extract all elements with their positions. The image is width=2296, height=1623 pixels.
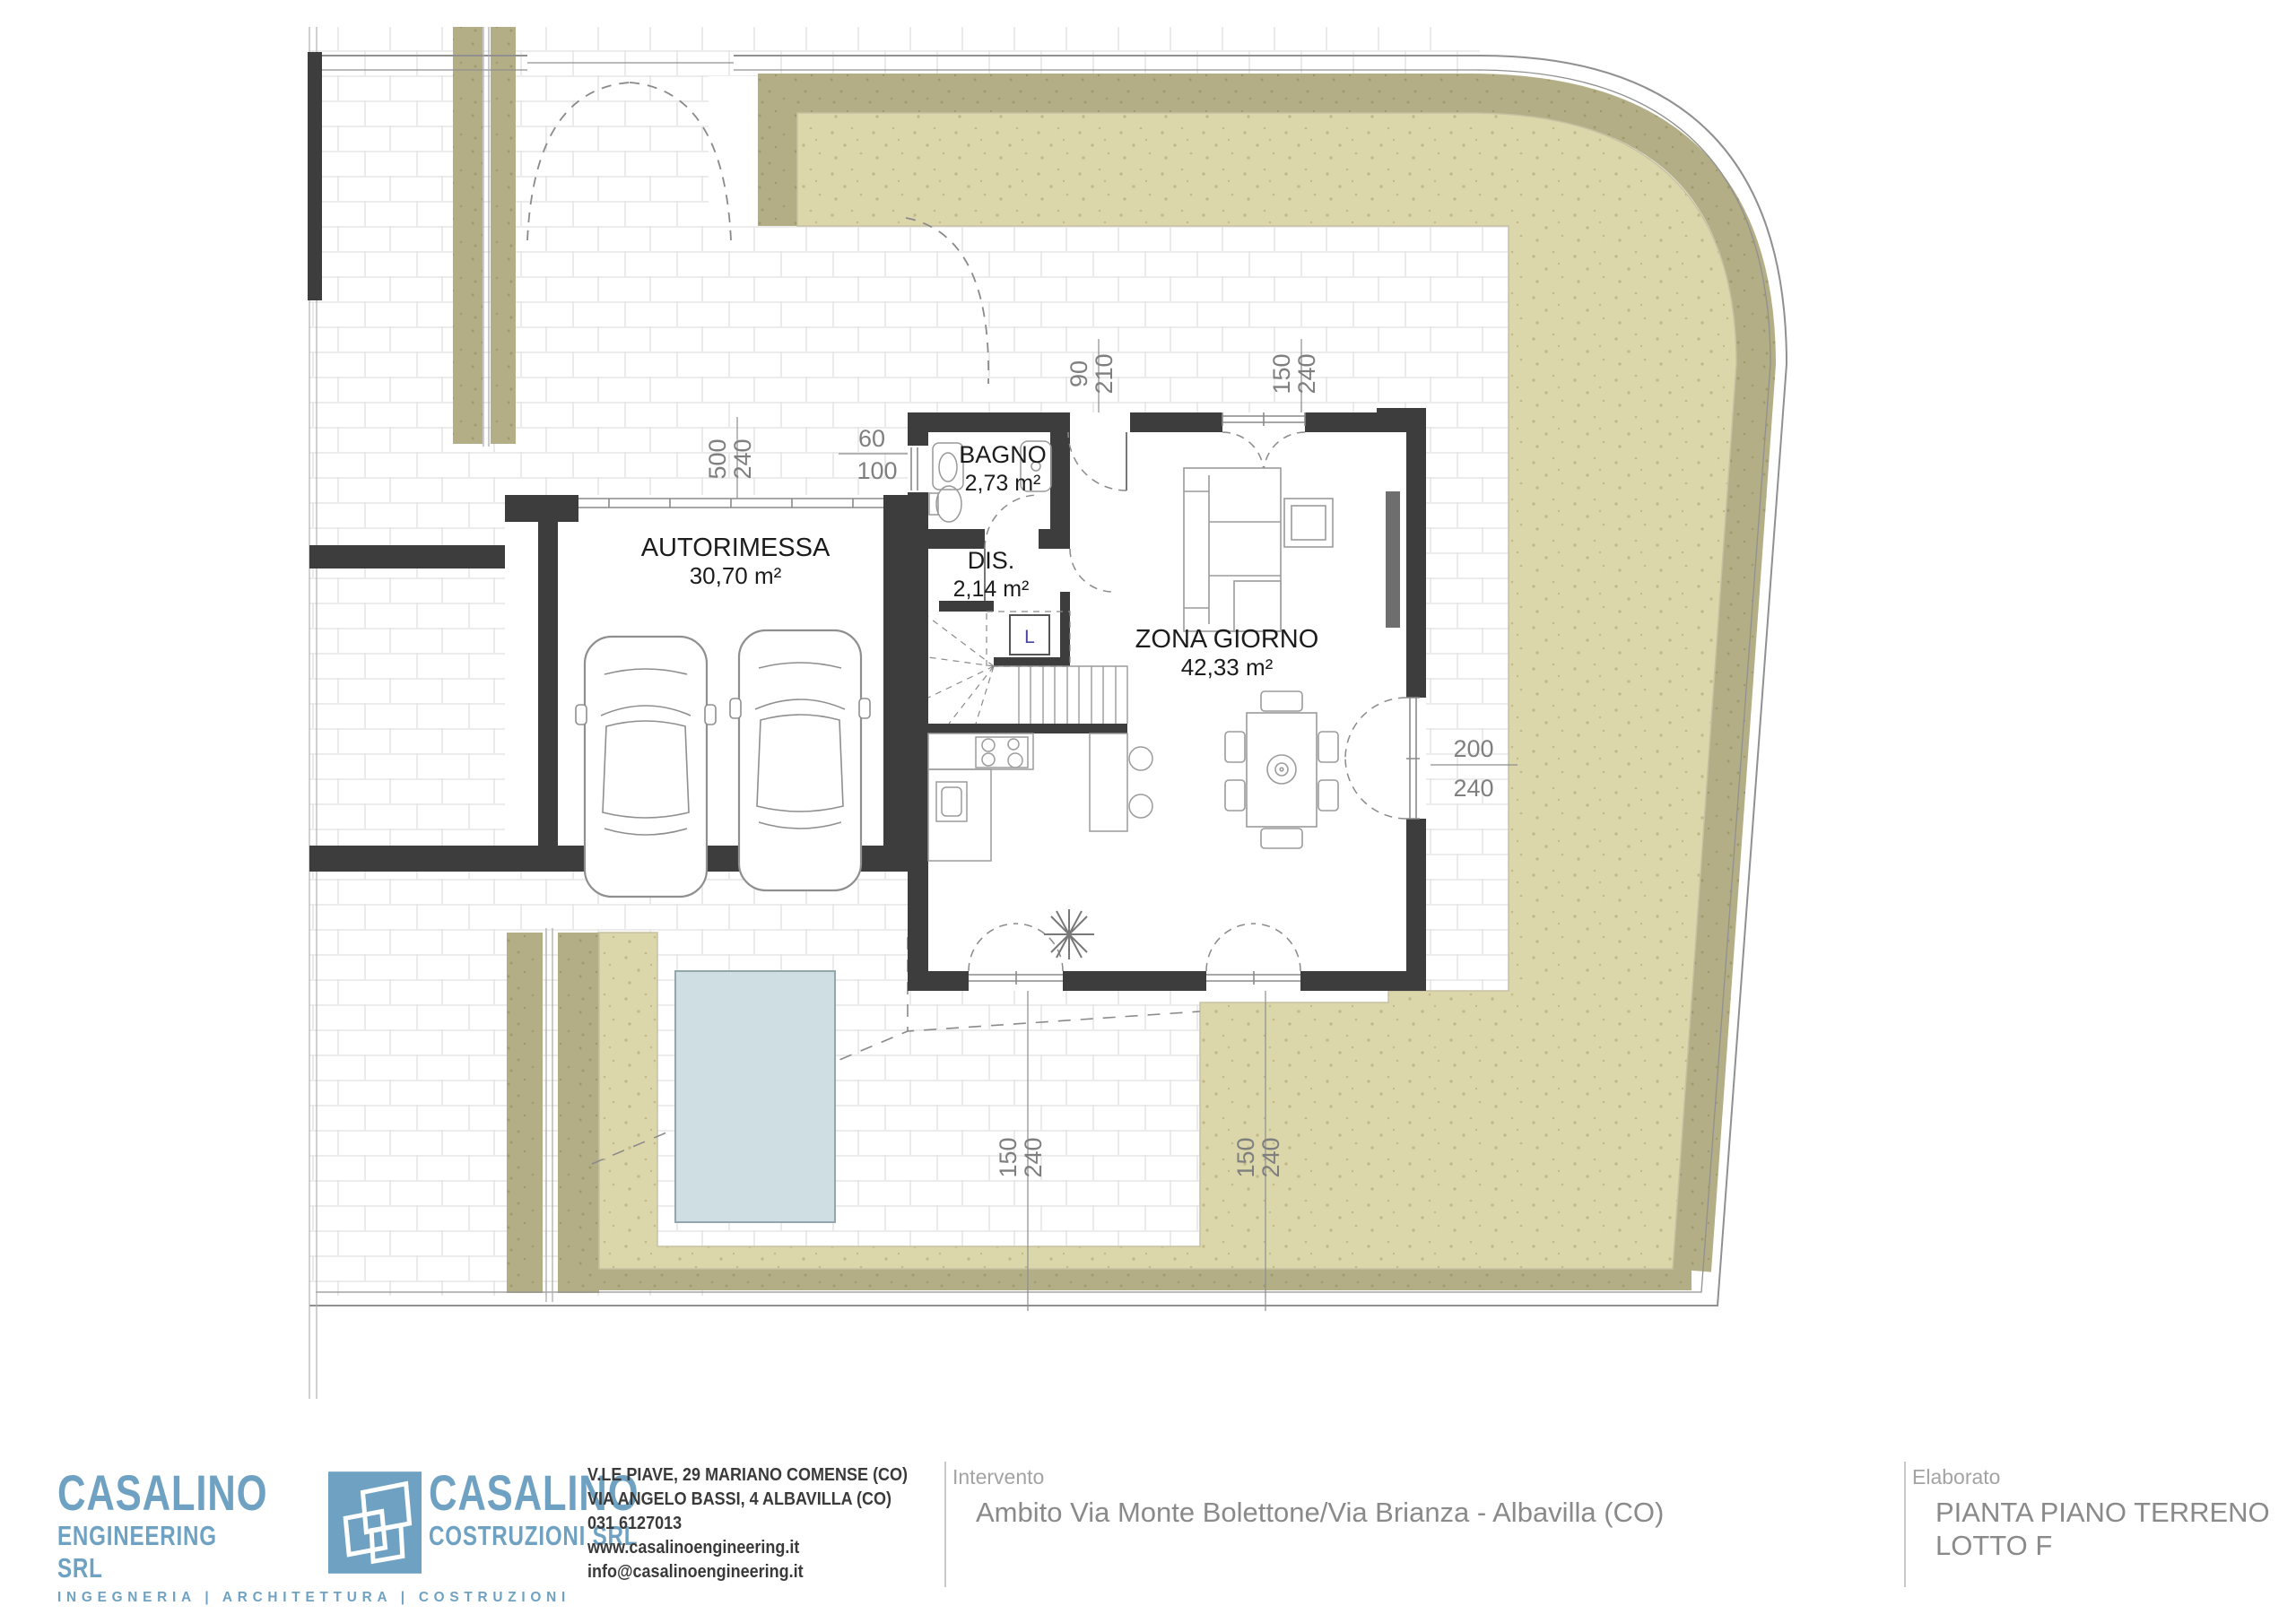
dim-north-window-h: 240 [1293,353,1320,394]
elevator-label: L [1024,627,1035,647]
title-block: CASALINO ENGINEERING SRL CASALINO COSTRU… [0,1453,2296,1623]
tv-unit [1386,491,1400,628]
elevator: L [1010,615,1049,655]
room-area-bagno: 2,73 m² [965,471,1041,496]
room-area-dis: 2,14 m² [953,577,1030,602]
intervento-value: Ambito Via Monte Bolettone/Via Brianza -… [976,1497,1664,1530]
sofa [1184,468,1281,631]
room-area-zona-giorno: 42,33 m² [1181,654,1274,681]
dim-south-window-left-w: 150 [995,1137,1022,1177]
dim-south-window-right-h: 240 [1257,1137,1284,1177]
divider [1904,1462,1906,1587]
dim-bagno-window-h: 100 [857,457,897,484]
room-area-autorimessa: 30,70 m² [690,562,782,589]
intervento-section: Intervento Ambito Via Monte Bolettone/Vi… [952,1465,1664,1530]
company-left-sub: ENGINEERING SRL [57,1520,267,1584]
dim-garage-door-h: 240 [729,438,756,479]
divider [944,1462,946,1587]
contact-email: info@casalinoengineering.it [587,1560,908,1584]
room-label-autorimessa: AUTORIMESSA [641,534,831,562]
elaborato-title: PIANTA PIANO TERRENO [1935,1497,2270,1530]
dim-south-window-right-w: 150 [1232,1137,1259,1177]
drawing-sheet: L [0,0,2296,1623]
floor-plan-svg: L [0,0,2296,1623]
dim-south-window-left-h: 240 [1020,1137,1047,1177]
company-left: CASALINO ENGINEERING SRL [57,1469,267,1584]
elaborato-section: Elaborato PIANTA PIANO TERRENO LOTTO F [1912,1465,2270,1562]
dim-east-window-h: 240 [1453,775,1493,802]
dim-north-window-w: 150 [1268,353,1295,394]
logo-icon [328,1471,422,1575]
contact-address-2: VIA ANGELO BASSI, 4 ALBAVILLA (CO) [587,1488,908,1512]
plant-icon [1044,909,1094,959]
room-label-zona-giorno: ZONA GIORNO [1135,625,1319,654]
dim-bagno-window-w: 60 [858,425,885,452]
elaborato-label: Elaborato [1912,1465,2270,1489]
contact-block: V.LE PIAVE, 29 MARIANO COMENSE (CO) VIA … [587,1463,908,1584]
dim-east-window-w: 200 [1453,735,1493,762]
intervento-label: Intervento [952,1465,1664,1489]
company-left-name: CASALINO [57,1469,267,1516]
elaborato-lot: LOTTO F [1935,1530,2270,1563]
contact-address-1: V.LE PIAVE, 29 MARIANO COMENSE (CO) [587,1463,908,1488]
dim-entry-door-h: 210 [1091,353,1118,394]
contact-phone: 031 6127013 [587,1512,908,1536]
company-logo: CASALINO ENGINEERING SRL CASALINO COSTRU… [57,1469,587,1606]
contact-website: www.casalinoengineering.it [587,1536,908,1560]
room-label-bagno: BAGNO [959,441,1047,468]
dim-entry-door-w: 90 [1065,360,1092,387]
company-tagline: INGEGNERIA | ARCHITETTURA | COSTRUZIONI [57,1590,565,1606]
room-label-dis: DIS. [968,547,1015,574]
dim-garage-door-w: 500 [704,438,731,479]
pool [675,971,835,1222]
